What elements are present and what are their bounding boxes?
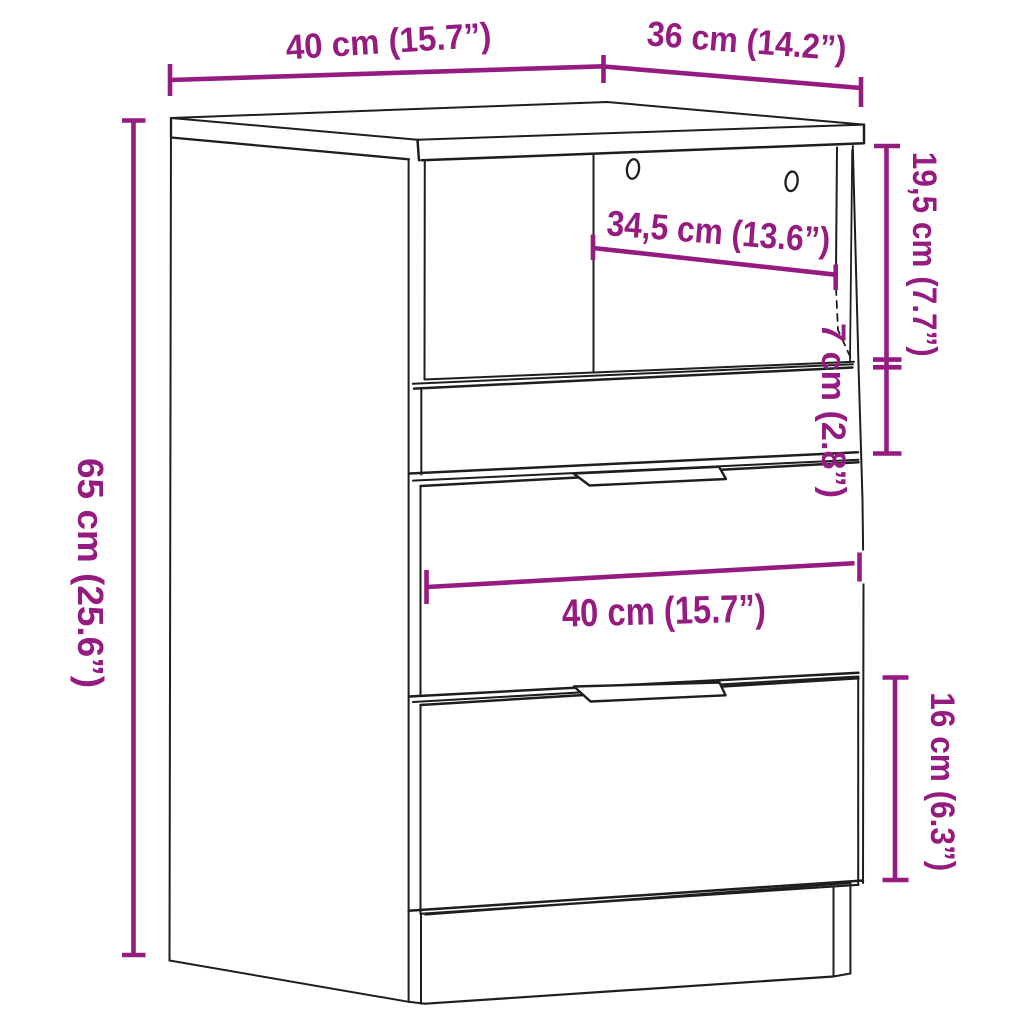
svg-text:65 cm (25.6”): 65 cm (25.6”) <box>70 458 111 688</box>
svg-text:19,5 cm (7.7”): 19,5 cm (7.7”) <box>905 152 943 357</box>
svg-text:7 cm (2.8”): 7 cm (2.8”) <box>814 323 852 498</box>
svg-text:16 cm (6.3”): 16 cm (6.3”) <box>923 692 961 871</box>
svg-text:40 cm (15.7”): 40 cm (15.7”) <box>561 587 766 635</box>
